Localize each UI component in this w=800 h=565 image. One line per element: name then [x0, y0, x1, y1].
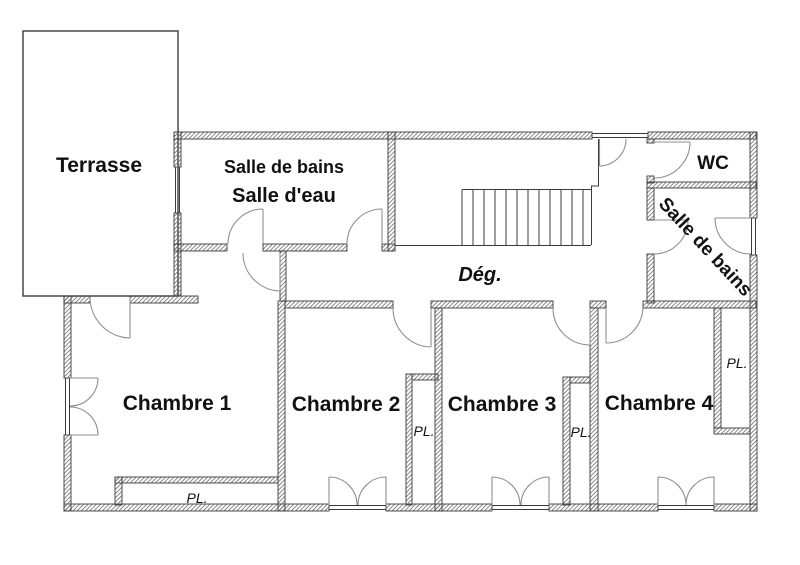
- door-lobby: [243, 253, 281, 291]
- wall-segment: [64, 296, 90, 303]
- window-bedroom1: [70, 378, 98, 435]
- window-bedroom2: [329, 477, 386, 505]
- wall-segment: [590, 301, 606, 308]
- stairwell-right-edge: [592, 139, 599, 245]
- wall-segment: [750, 255, 757, 511]
- wall-segment: [174, 132, 592, 139]
- window-lines-bedroom3: [492, 506, 549, 510]
- floor-plan: Terrasse Salle de bains Salle d'eau WC S…: [0, 0, 800, 565]
- room-label-wc: WC: [697, 153, 729, 174]
- room-label-chambre-2: Chambre 2: [292, 393, 401, 416]
- room-label-chambre-4: Chambre 4: [605, 392, 714, 415]
- door-bathroom-right: [347, 209, 382, 244]
- wall-segment: [174, 213, 181, 296]
- door-bedroom1: [90, 297, 130, 338]
- wall-segment: [280, 251, 286, 301]
- closet-label-bedroom1: PL.: [186, 490, 207, 506]
- closet-wall: [412, 374, 438, 380]
- closet-wall: [563, 377, 570, 505]
- wall-segment: [648, 132, 756, 139]
- room-label-chambre-3: Chambre 3: [448, 393, 557, 416]
- room-label-chambre-1: Chambre 1: [123, 392, 232, 415]
- window-lines-bedroom4: [658, 506, 714, 510]
- wall-segment: [435, 308, 442, 511]
- wall-segment: [174, 244, 227, 251]
- window-lines-top-landing: [592, 134, 648, 138]
- door-bedroom4: [606, 308, 643, 343]
- wall-segment: [130, 296, 198, 303]
- wall-segment: [647, 254, 654, 303]
- closet-label-bedroom4: PL.: [726, 355, 747, 371]
- wall-segment: [750, 132, 757, 218]
- door-bedroom3: [553, 308, 590, 345]
- room-label-salle-d-eau: Salle d'eau: [232, 185, 336, 207]
- wall-segment: [388, 132, 395, 251]
- wall-segment: [263, 244, 347, 251]
- closet-wall: [714, 428, 750, 434]
- wall-segment: [431, 301, 553, 308]
- window-bedroom3: [492, 477, 549, 505]
- wall-segment: [285, 301, 393, 308]
- room-label-degagement: Dég.: [458, 264, 501, 286]
- window-lines-right-bathroom: [752, 218, 756, 255]
- wall-segment: [174, 132, 181, 167]
- window-lines-bedroom2: [329, 506, 386, 510]
- closet-wall: [115, 477, 278, 483]
- door-landing: [600, 139, 627, 166]
- room-label-terrasse: Terrasse: [56, 154, 142, 177]
- wall-segment: [647, 139, 654, 143]
- window-lines-bedroom1: [66, 378, 70, 435]
- room-label-salle-de-bains-right: Salle de bains: [654, 194, 756, 301]
- wall-segment: [278, 301, 285, 511]
- door-bedroom2: [393, 308, 431, 347]
- wall-segment: [64, 296, 71, 378]
- closet-wall: [115, 477, 122, 505]
- wall-segment: [647, 188, 654, 220]
- wall-segment: [714, 504, 757, 511]
- stair-treads: [462, 190, 583, 246]
- window-bedroom4: [658, 477, 714, 505]
- door-bathroom-left: [228, 209, 263, 244]
- closet-wall: [714, 308, 721, 428]
- wall-segment: [647, 182, 756, 188]
- wall-segment: [64, 435, 71, 511]
- closet-label-bedroom2: PL.: [413, 423, 434, 439]
- room-label-salle-de-bains-top: Salle de bains: [224, 157, 344, 177]
- floor-plan-svg: Terrasse Salle de bains Salle d'eau WC S…: [0, 0, 800, 565]
- closet-wall: [406, 374, 412, 505]
- closet-label-bedroom3: PL.: [570, 424, 591, 440]
- door-wc: [654, 142, 690, 178]
- wall-segment: [643, 301, 756, 308]
- closet-wall: [570, 377, 590, 383]
- wall-segment: [590, 308, 598, 511]
